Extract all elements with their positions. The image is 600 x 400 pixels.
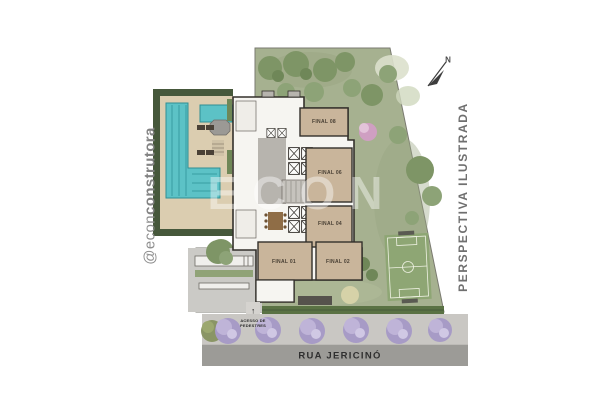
soccer-field [384, 230, 432, 304]
unit-label-final-08: FINAL 08 [312, 119, 336, 125]
watermark: ECON [208, 166, 397, 220]
north-label: N [445, 56, 451, 65]
pedestrian-access-arrow-icon: ↑ [251, 307, 255, 316]
lobby-annex [256, 280, 294, 302]
brand-handle: @econconstrutora [142, 127, 159, 265]
site-plan-illustration: ECON FINAL 08 FINAL 06 FINAL 04 FINAL 01… [0, 0, 600, 400]
unit-label-final-02: FINAL 02 [326, 259, 350, 265]
unit-label-final-04: FINAL 04 [318, 221, 342, 227]
street-name-label: RUA JERICINÓ [298, 351, 381, 362]
north-arrow-icon [428, 62, 446, 86]
pedestrian-access-label: ACESSO DE PEDESTRES [240, 318, 266, 328]
perspective-label: PERSPECTIVA ILUSTRADA [456, 102, 470, 292]
entrance-canopy [298, 296, 332, 305]
unit-label-final-06: FINAL 06 [318, 170, 342, 176]
unit-label-final-01: FINAL 01 [272, 259, 296, 265]
pale-flowering-tree [341, 286, 359, 304]
